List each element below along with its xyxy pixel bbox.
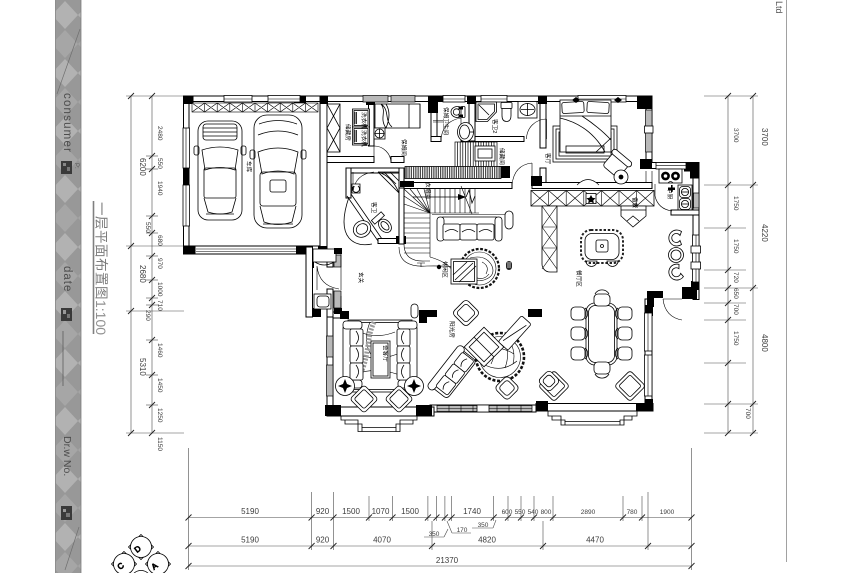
svg-text:2680: 2680 [138, 265, 147, 283]
svg-text:550: 550 [156, 158, 163, 169]
svg-text:5190: 5190 [241, 536, 259, 545]
svg-text:一层平面布置图: 一层平面布置图 [94, 202, 109, 300]
svg-text:710: 710 [156, 300, 163, 311]
svg-text:1:100: 1:100 [93, 300, 109, 335]
svg-text:1250: 1250 [156, 408, 163, 423]
svg-text:consumer: consumer [61, 93, 73, 153]
svg-text:540: 540 [528, 509, 539, 516]
svg-text:680: 680 [156, 235, 163, 246]
svg-text:4070: 4070 [373, 536, 391, 545]
svg-text:车库: 车库 [245, 161, 253, 173]
svg-text:1750: 1750 [732, 331, 739, 346]
svg-text:21370: 21370 [436, 556, 459, 565]
svg-text:1500: 1500 [342, 507, 360, 516]
svg-text:阳光房: 阳光房 [448, 321, 456, 338]
svg-text:休闲区: 休闲区 [441, 261, 449, 278]
svg-text:780: 780 [627, 509, 638, 516]
svg-text:1500: 1500 [401, 507, 419, 516]
svg-text:储藏房: 储藏房 [344, 124, 352, 141]
svg-text:备餐: 备餐 [631, 197, 639, 209]
svg-text:1940: 1940 [156, 181, 163, 196]
svg-text:Dr.w No.: Dr.w No. [61, 436, 73, 476]
svg-text:保姆间: 保姆间 [400, 139, 408, 156]
svg-text:550: 550 [515, 509, 526, 516]
svg-text:1750: 1750 [732, 196, 739, 211]
svg-text:3700: 3700 [732, 128, 739, 143]
svg-text:1460: 1460 [156, 343, 163, 358]
svg-text:920: 920 [316, 507, 330, 516]
svg-text:餐厅区: 餐厅区 [575, 270, 583, 287]
svg-text:储藏间: 储藏间 [498, 148, 506, 165]
svg-text:920: 920 [316, 536, 330, 545]
svg-text:700: 700 [732, 304, 739, 315]
svg-text:洗衣机: 洗衣机 [360, 130, 368, 147]
svg-text:290: 290 [144, 310, 151, 321]
svg-text:玄关: 玄关 [357, 272, 365, 284]
svg-text:1900: 1900 [660, 509, 675, 516]
svg-text:2890: 2890 [581, 509, 596, 516]
svg-text:1000: 1000 [156, 282, 163, 297]
svg-text:1070: 1070 [372, 507, 390, 516]
svg-text:700: 700 [744, 408, 751, 419]
svg-text:date: date [61, 266, 73, 292]
svg-text:970: 970 [156, 258, 163, 269]
svg-text:3700: 3700 [760, 128, 769, 146]
svg-text:4800: 4800 [760, 334, 769, 352]
svg-text:Ltd: Ltd [774, 1, 784, 14]
svg-text:客卫2: 客卫2 [491, 119, 499, 133]
svg-text:1150: 1150 [156, 437, 163, 451]
svg-text:5310: 5310 [138, 358, 147, 376]
svg-text:保姆卫生间: 保姆卫生间 [442, 107, 450, 135]
svg-text:1750: 1750 [732, 239, 739, 254]
svg-text:600: 600 [502, 509, 513, 516]
svg-text:2480: 2480 [156, 126, 163, 141]
svg-text:会客厅: 会客厅 [382, 345, 390, 362]
svg-text:4470: 4470 [586, 536, 604, 545]
svg-text:720: 720 [732, 272, 739, 283]
svg-text:1450: 1450 [156, 378, 163, 393]
svg-text:5190: 5190 [241, 507, 259, 516]
svg-text:P:: P: [73, 163, 79, 169]
svg-text:550: 550 [144, 222, 151, 233]
svg-text:4220: 4220 [760, 224, 769, 242]
svg-text:800: 800 [541, 509, 552, 516]
svg-text:1740: 1740 [463, 507, 481, 516]
svg-text:客卫: 客卫 [370, 202, 378, 214]
svg-text:中厨: 中厨 [666, 188, 674, 200]
svg-text:650: 650 [732, 288, 739, 299]
svg-text:洗衣机: 洗衣机 [360, 112, 368, 129]
svg-text:衣帽间: 衣帽间 [424, 182, 432, 199]
svg-text:4820: 4820 [478, 536, 496, 545]
svg-text:客厅: 客厅 [544, 153, 552, 165]
svg-text:6200: 6200 [138, 158, 147, 176]
